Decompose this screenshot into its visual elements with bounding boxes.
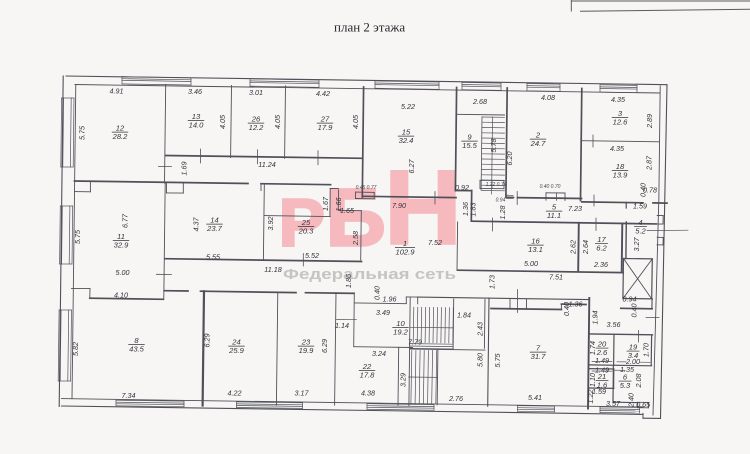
- svg-text:1.70: 1.70: [641, 343, 650, 357]
- svg-text:25.9: 25.9: [228, 346, 245, 355]
- svg-text:7.23: 7.23: [568, 204, 582, 213]
- svg-text:1.94: 1.94: [590, 311, 599, 325]
- svg-text:0.94: 0.94: [623, 294, 637, 303]
- svg-text:7.90: 7.90: [392, 201, 406, 210]
- svg-text:5.41: 5.41: [528, 393, 542, 402]
- svg-text:1.6: 1.6: [597, 380, 608, 389]
- svg-text:19.9: 19.9: [299, 346, 315, 355]
- svg-text:1.96: 1.96: [383, 294, 397, 303]
- svg-text:28.2: 28.2: [112, 132, 129, 141]
- svg-text:14.0: 14.0: [189, 120, 205, 129]
- svg-text:4.08: 4.08: [541, 93, 555, 102]
- svg-text:6.2: 6.2: [596, 243, 607, 252]
- svg-text:2.68: 2.68: [472, 97, 487, 106]
- svg-text:31.7: 31.7: [531, 352, 547, 361]
- svg-text:7.51: 7.51: [549, 272, 563, 281]
- svg-text:32.4: 32.4: [399, 136, 414, 145]
- svg-text:4.35: 4.35: [610, 144, 625, 153]
- svg-text:11.24: 11.24: [258, 160, 275, 169]
- svg-text:2.87: 2.87: [644, 155, 653, 171]
- svg-text:5.3: 5.3: [620, 381, 631, 390]
- svg-text:1.22 0.74: 1.22 0.74: [486, 182, 507, 188]
- svg-text:4.10: 4.10: [114, 290, 128, 299]
- svg-text:1.14: 1.14: [335, 321, 349, 330]
- svg-text:1.66: 1.66: [334, 198, 343, 212]
- svg-text:1.28: 1.28: [498, 206, 507, 220]
- svg-text:12.2: 12.2: [249, 123, 265, 132]
- svg-text:4.05: 4.05: [351, 114, 360, 129]
- svg-text:3.4: 3.4: [628, 351, 639, 360]
- svg-text:4.35: 4.35: [611, 95, 626, 104]
- svg-text:2.36: 2.36: [593, 260, 608, 269]
- svg-text:1.73: 1.73: [487, 275, 496, 289]
- svg-text:2.62: 2.62: [568, 240, 577, 255]
- svg-text:2.6: 2.6: [596, 348, 608, 357]
- svg-text:19.2: 19.2: [393, 327, 409, 336]
- svg-text:5.82: 5.82: [71, 342, 80, 356]
- svg-text:0.92: 0.92: [455, 183, 469, 192]
- svg-text:23.7: 23.7: [206, 224, 223, 233]
- svg-text:5.55: 5.55: [206, 252, 221, 261]
- svg-text:1.74: 1.74: [588, 341, 597, 355]
- svg-text:17.8: 17.8: [360, 370, 376, 379]
- svg-text:102.9: 102.9: [395, 247, 415, 256]
- svg-text:2.64: 2.64: [581, 240, 590, 255]
- svg-text:0.94: 0.94: [496, 198, 506, 204]
- svg-text:17.9: 17.9: [318, 123, 334, 132]
- svg-text:2.58: 2.58: [351, 231, 360, 246]
- svg-text:6.29: 6.29: [202, 334, 211, 348]
- svg-text:4.91: 4.91: [110, 86, 124, 95]
- svg-text:2.89: 2.89: [645, 114, 654, 129]
- svg-text:Федеральная сеть: Федеральная сеть: [283, 267, 456, 283]
- svg-text:32.9: 32.9: [114, 240, 130, 249]
- svg-text:5.2: 5.2: [635, 226, 646, 235]
- svg-text:3.01: 3.01: [249, 88, 263, 97]
- svg-text:6.20: 6.20: [505, 152, 514, 166]
- svg-text:5.00: 5.00: [116, 268, 130, 277]
- svg-text:6.29: 6.29: [320, 339, 329, 353]
- svg-text:0.40 0.70: 0.40 0.70: [540, 184, 561, 190]
- svg-text:0.40: 0.40: [562, 302, 571, 316]
- svg-text:12.6: 12.6: [613, 117, 629, 126]
- svg-text:0.45 0.77: 0.45 0.77: [356, 185, 377, 191]
- svg-text:5.80: 5.80: [475, 353, 484, 367]
- svg-text:3.57: 3.57: [606, 399, 621, 408]
- svg-text:43.5: 43.5: [129, 344, 145, 353]
- svg-text:5.78: 5.78: [489, 139, 498, 153]
- svg-text:1.49: 1.49: [595, 356, 609, 365]
- svg-text:0.40: 0.40: [629, 304, 638, 318]
- svg-text:1.86: 1.86: [344, 274, 353, 288]
- svg-text:7.52: 7.52: [428, 238, 442, 247]
- svg-text:6.77: 6.77: [120, 213, 129, 228]
- svg-text:0.40: 0.40: [638, 183, 647, 197]
- svg-text:5.75: 5.75: [77, 125, 86, 140]
- svg-text:1.83: 1.83: [468, 203, 477, 217]
- svg-text:5.75: 5.75: [73, 229, 82, 244]
- svg-text:3.92: 3.92: [266, 217, 275, 231]
- svg-text:3.49: 3.49: [376, 308, 390, 317]
- svg-text:1.67: 1.67: [321, 196, 330, 211]
- svg-text:3.17: 3.17: [295, 388, 310, 397]
- svg-text:3.24: 3.24: [372, 349, 386, 358]
- svg-text:20.3: 20.3: [298, 226, 315, 235]
- svg-text:4.38: 4.38: [361, 388, 375, 397]
- svg-text:11.18: 11.18: [264, 265, 281, 274]
- svg-text:5.75: 5.75: [493, 353, 502, 368]
- svg-text:2.08: 2.08: [634, 374, 643, 389]
- svg-text:2.43: 2.43: [475, 322, 484, 337]
- svg-text:4.22: 4.22: [228, 388, 242, 397]
- svg-text:1.84: 1.84: [457, 310, 471, 319]
- svg-text:13.9: 13.9: [613, 170, 629, 179]
- svg-text:6.27: 6.27: [407, 159, 416, 174]
- svg-text:7.34: 7.34: [122, 391, 136, 400]
- svg-text:2.76: 2.76: [448, 394, 463, 403]
- svg-text:1.59: 1.59: [633, 201, 647, 210]
- svg-text:5.22: 5.22: [401, 102, 415, 111]
- svg-text:3.56: 3.56: [607, 320, 621, 329]
- svg-text:15.5: 15.5: [462, 141, 478, 150]
- svg-text:1.69: 1.69: [179, 162, 188, 176]
- svg-text:4.05: 4.05: [273, 114, 282, 129]
- svg-text:2.40: 2.40: [626, 393, 635, 408]
- svg-text:план 2 этажа: план 2 этажа: [334, 20, 405, 35]
- svg-text:1.22: 1.22: [586, 390, 595, 404]
- svg-text:24.7: 24.7: [530, 139, 547, 148]
- svg-text:4.42: 4.42: [316, 89, 330, 98]
- svg-text:3.46: 3.46: [188, 87, 202, 96]
- svg-text:0.65: 0.65: [636, 400, 651, 409]
- svg-text:4.05: 4.05: [218, 114, 227, 129]
- svg-text:0.40: 0.40: [372, 286, 381, 300]
- svg-text:3.27: 3.27: [632, 237, 641, 252]
- svg-text:7.79: 7.79: [408, 337, 422, 346]
- svg-text:3.29: 3.29: [398, 373, 407, 387]
- svg-text:4.37: 4.37: [191, 217, 200, 232]
- svg-text:13.1: 13.1: [528, 245, 543, 254]
- svg-text:5.52: 5.52: [305, 251, 319, 260]
- svg-text:5.00: 5.00: [524, 259, 538, 268]
- svg-text:11.1: 11.1: [547, 211, 561, 220]
- svg-text:1.10: 1.10: [588, 373, 597, 387]
